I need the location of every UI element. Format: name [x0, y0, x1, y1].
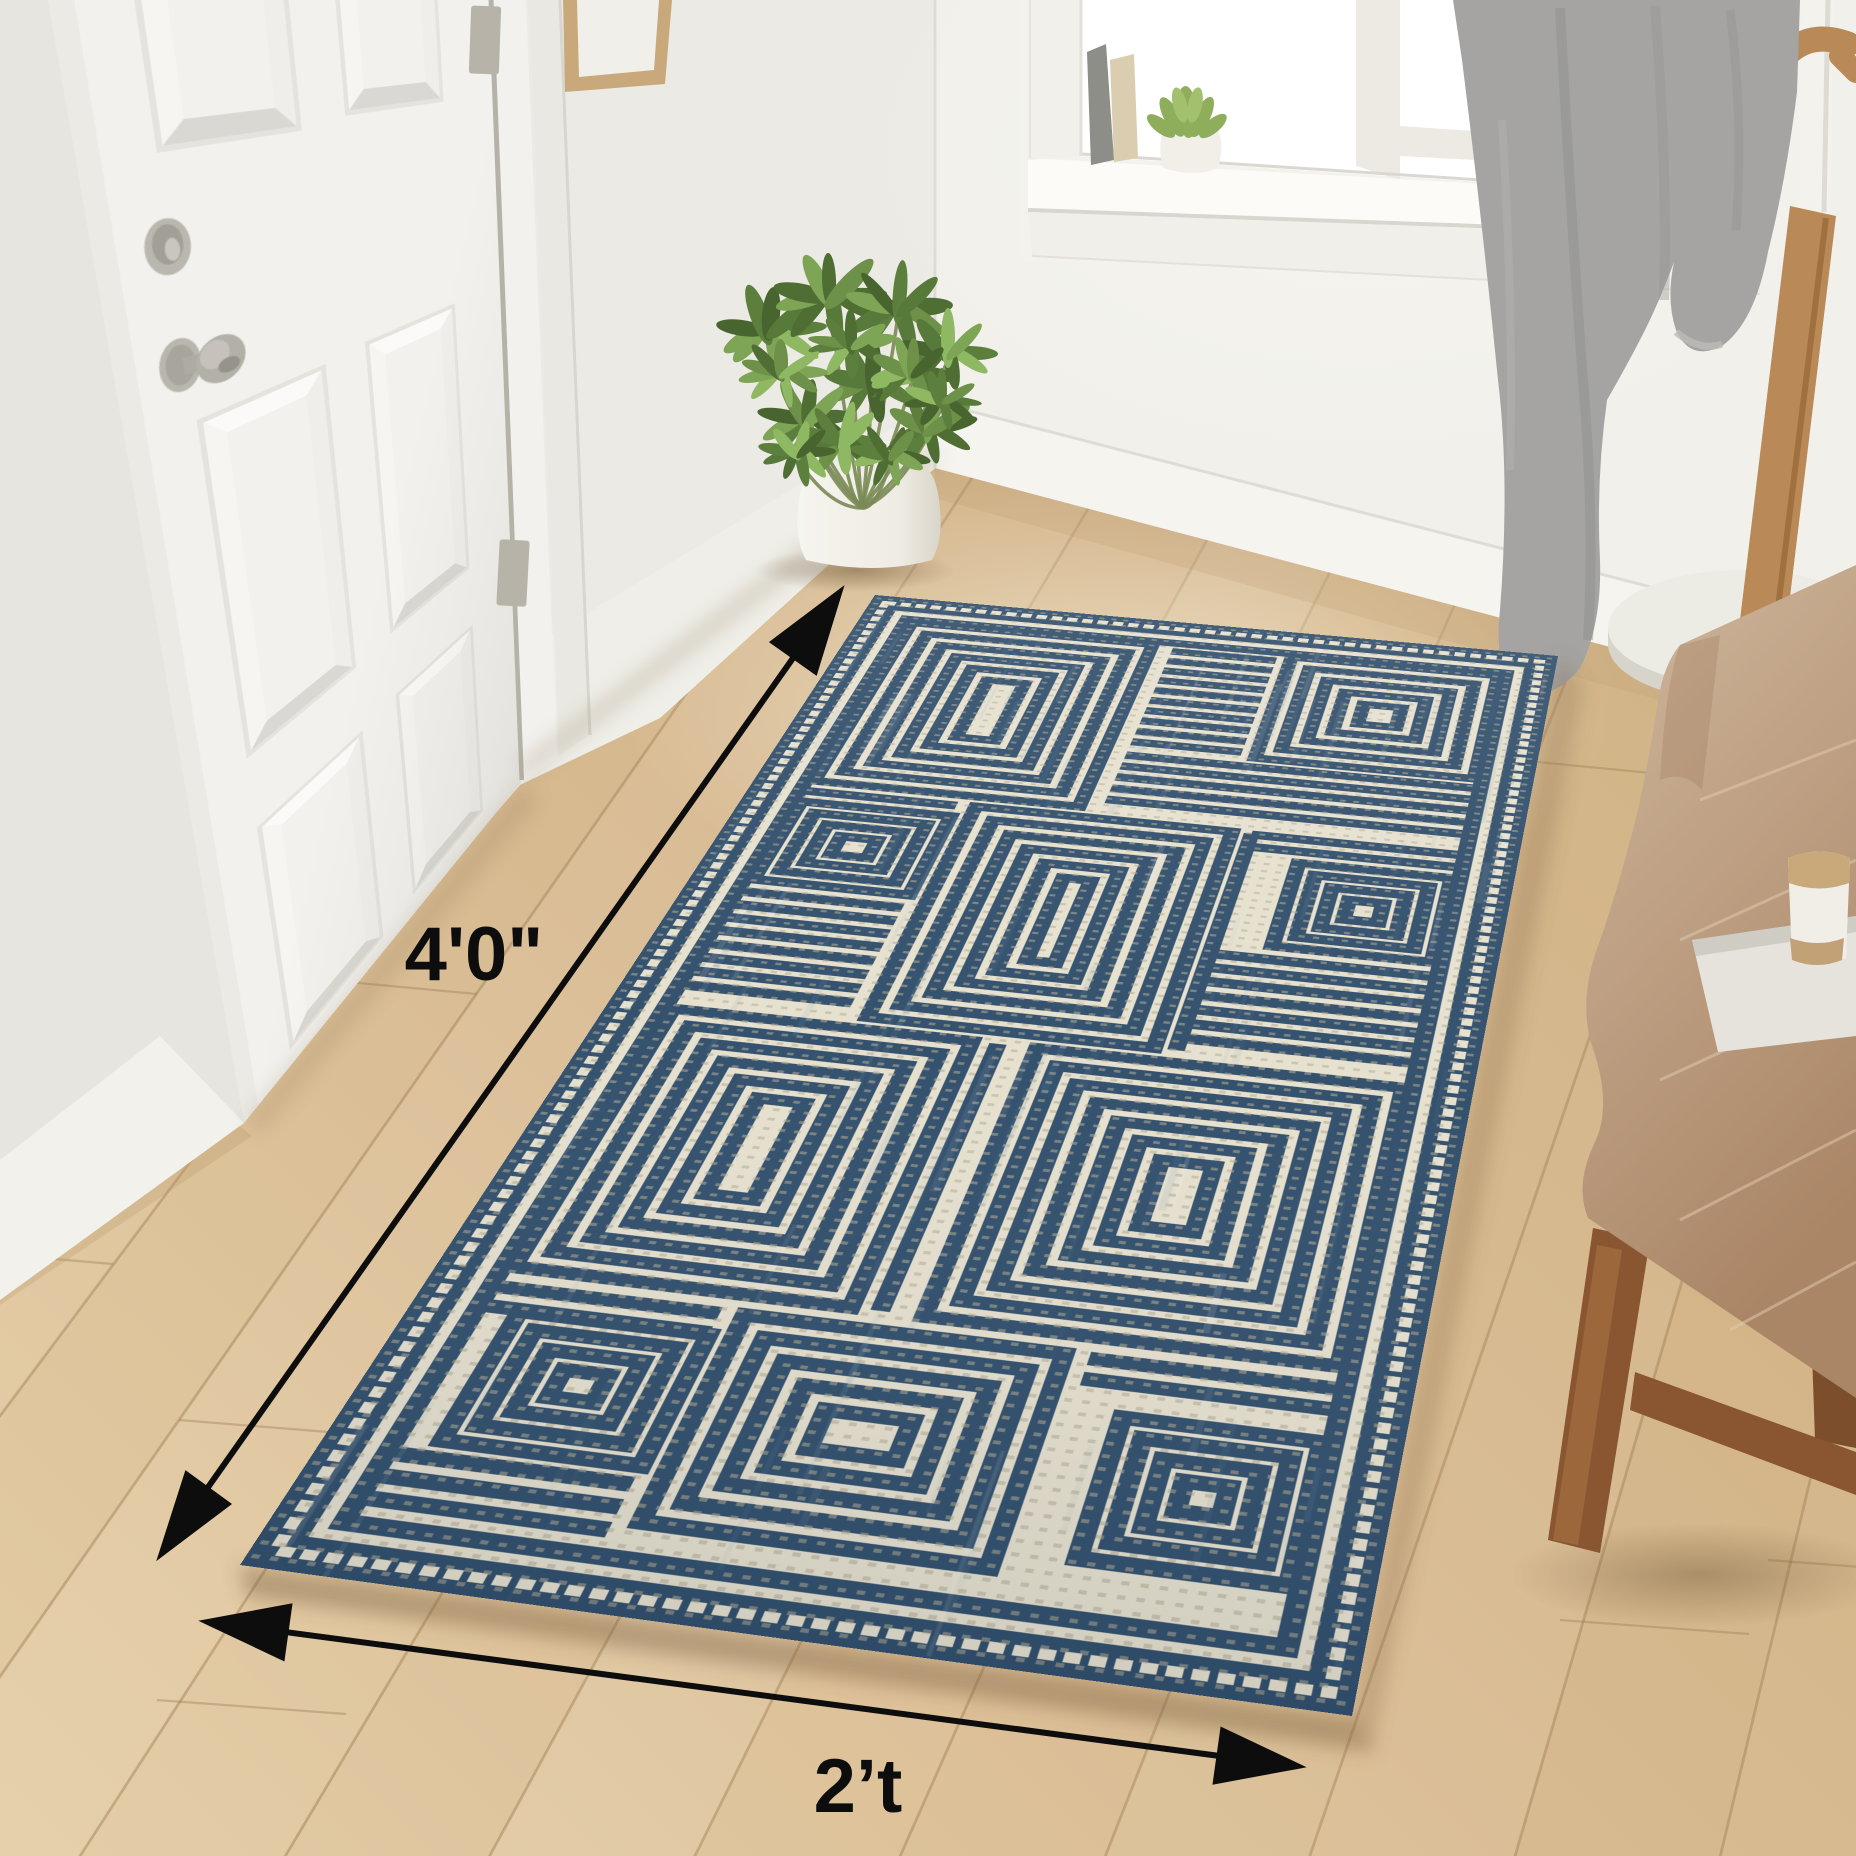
svg-text:2’t: 2’t [814, 1744, 903, 1829]
svg-text:4'0": 4'0" [405, 912, 544, 997]
